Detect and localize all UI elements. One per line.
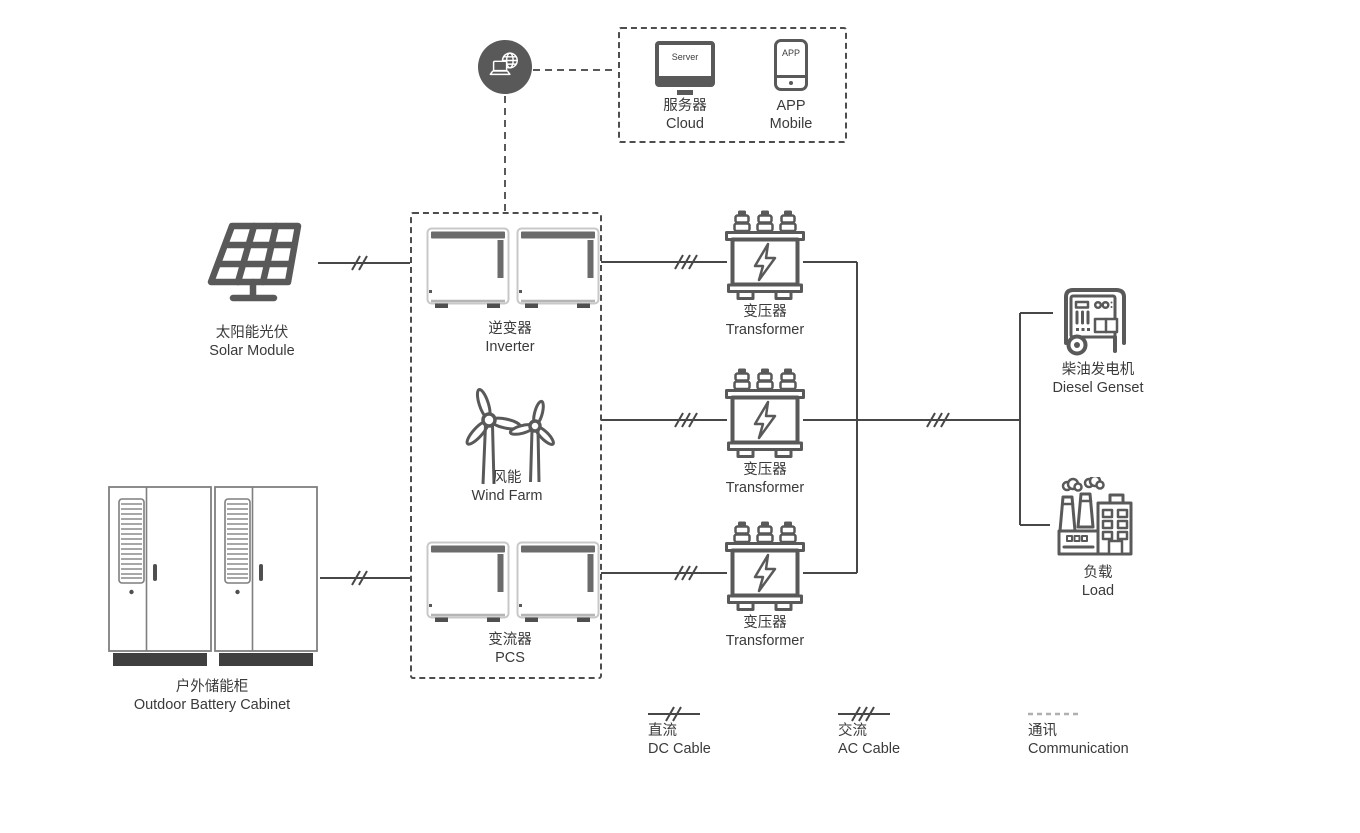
phone-screen-text: APP [777, 48, 805, 58]
legend-dc-line [648, 707, 700, 721]
remote-monitoring-group-box: Server 服务器 Cloud APP APP Mobile [618, 27, 847, 143]
legend-comm: 通讯 Communication [1028, 722, 1188, 758]
solar-label-zh: 太阳能光伏 [166, 324, 338, 342]
legend-dc-zh: 直流 [648, 722, 788, 740]
monitor-chin [659, 76, 711, 83]
server-label-en: Cloud [634, 115, 736, 133]
transformer1-label-zh: 变压器 [685, 303, 845, 321]
diesel-label-en: Diesel Genset [1018, 379, 1178, 397]
app-label-en: Mobile [741, 115, 841, 133]
legend-ac-en: AC Cable [838, 740, 978, 758]
diesel-label-zh: 柴油发电机 [1018, 361, 1178, 379]
transformer3-label-zh: 变压器 [685, 614, 845, 632]
phone-home-dot [789, 81, 793, 85]
load-label: 负载 Load [1018, 564, 1178, 600]
legend-comm-en: Communication [1028, 740, 1188, 758]
legend-comm-zh: 通讯 [1028, 722, 1188, 740]
transformer1-label: 变压器 Transformer [685, 303, 845, 339]
diesel-genset-icon [1053, 285, 1143, 357]
transformer3-label-en: Transformer [685, 632, 845, 650]
app-label-zh: APP [741, 97, 841, 115]
pcs-label: 变流器 PCS [420, 631, 600, 667]
pcs-unit-icon [516, 541, 600, 624]
server-label: 服务器 Cloud [634, 97, 736, 133]
battery-cabinet-icon [108, 486, 323, 671]
server-screen-text: Server [659, 52, 711, 62]
app-phone-icon: APP [774, 39, 808, 91]
pcs-label-zh: 变流器 [420, 631, 600, 649]
dc-link-battery-to-pcs [320, 571, 410, 585]
load-factory-icon [1052, 477, 1137, 562]
pcs-unit-icon [426, 541, 510, 624]
transformer2-icon [725, 368, 805, 460]
transformer1-icon [725, 210, 805, 302]
phone-divider [777, 75, 805, 78]
app-label: APP Mobile [741, 97, 841, 133]
wind-label-zh: 风能 [417, 469, 597, 487]
ac-link-inverter-to-transformer1 [601, 255, 727, 269]
ac-link-wind-to-transformer2 [601, 413, 727, 427]
diesel-label: 柴油发电机 Diesel Genset [1018, 361, 1178, 397]
diagram-canvas: Server 服务器 Cloud APP APP Mobile 太阳能光伏 S [0, 0, 1360, 833]
inverter-label: 逆变器 Inverter [420, 320, 600, 356]
ac-branch-genset-load [1020, 313, 1053, 525]
solar-label-en: Solar Module [166, 342, 338, 360]
load-label-zh: 负载 [1018, 564, 1178, 582]
solar-module-icon [202, 220, 304, 314]
monitor-stand [677, 90, 693, 95]
legend-ac: 交流 AC Cable [838, 722, 978, 758]
server-label-zh: 服务器 [634, 97, 736, 115]
inverter-unit-icon [426, 227, 510, 310]
transformer1-label-en: Transformer [685, 321, 845, 339]
server-monitor-icon: Server [655, 41, 715, 87]
legend-dc-en: DC Cable [648, 740, 788, 758]
legend-ac-zh: 交流 [838, 722, 978, 740]
inverter-unit-icon [516, 227, 600, 310]
transformer2-label-en: Transformer [685, 479, 845, 497]
battery-label: 户外储能柜 Outdoor Battery Cabinet [111, 678, 313, 714]
transformer2-label-zh: 变压器 [685, 461, 845, 479]
inverter-label-zh: 逆变器 [420, 320, 600, 338]
ac-link-bus-to-branch [803, 413, 1020, 427]
wind-label-en: Wind Farm [417, 487, 597, 505]
laptop-globe-icon [483, 45, 527, 89]
load-label-en: Load [1018, 582, 1178, 600]
dc-link-solar-to-inverter [318, 256, 410, 270]
battery-label-en: Outdoor Battery Cabinet [111, 696, 313, 714]
legend-dc: 直流 DC Cable [648, 722, 788, 758]
transformer3-icon [725, 521, 805, 613]
pcs-label-en: PCS [420, 649, 600, 667]
ac-link-pcs-to-transformer3 [601, 566, 727, 580]
wind-label: 风能 Wind Farm [417, 469, 597, 505]
transformer2-label: 变压器 Transformer [685, 461, 845, 497]
solar-label: 太阳能光伏 Solar Module [166, 324, 338, 360]
transformer3-label: 变压器 Transformer [685, 614, 845, 650]
battery-label-zh: 户外储能柜 [111, 678, 313, 696]
cloud-gateway-icon [478, 40, 532, 94]
inverter-label-en: Inverter [420, 338, 600, 356]
legend-ac-line [838, 707, 890, 721]
